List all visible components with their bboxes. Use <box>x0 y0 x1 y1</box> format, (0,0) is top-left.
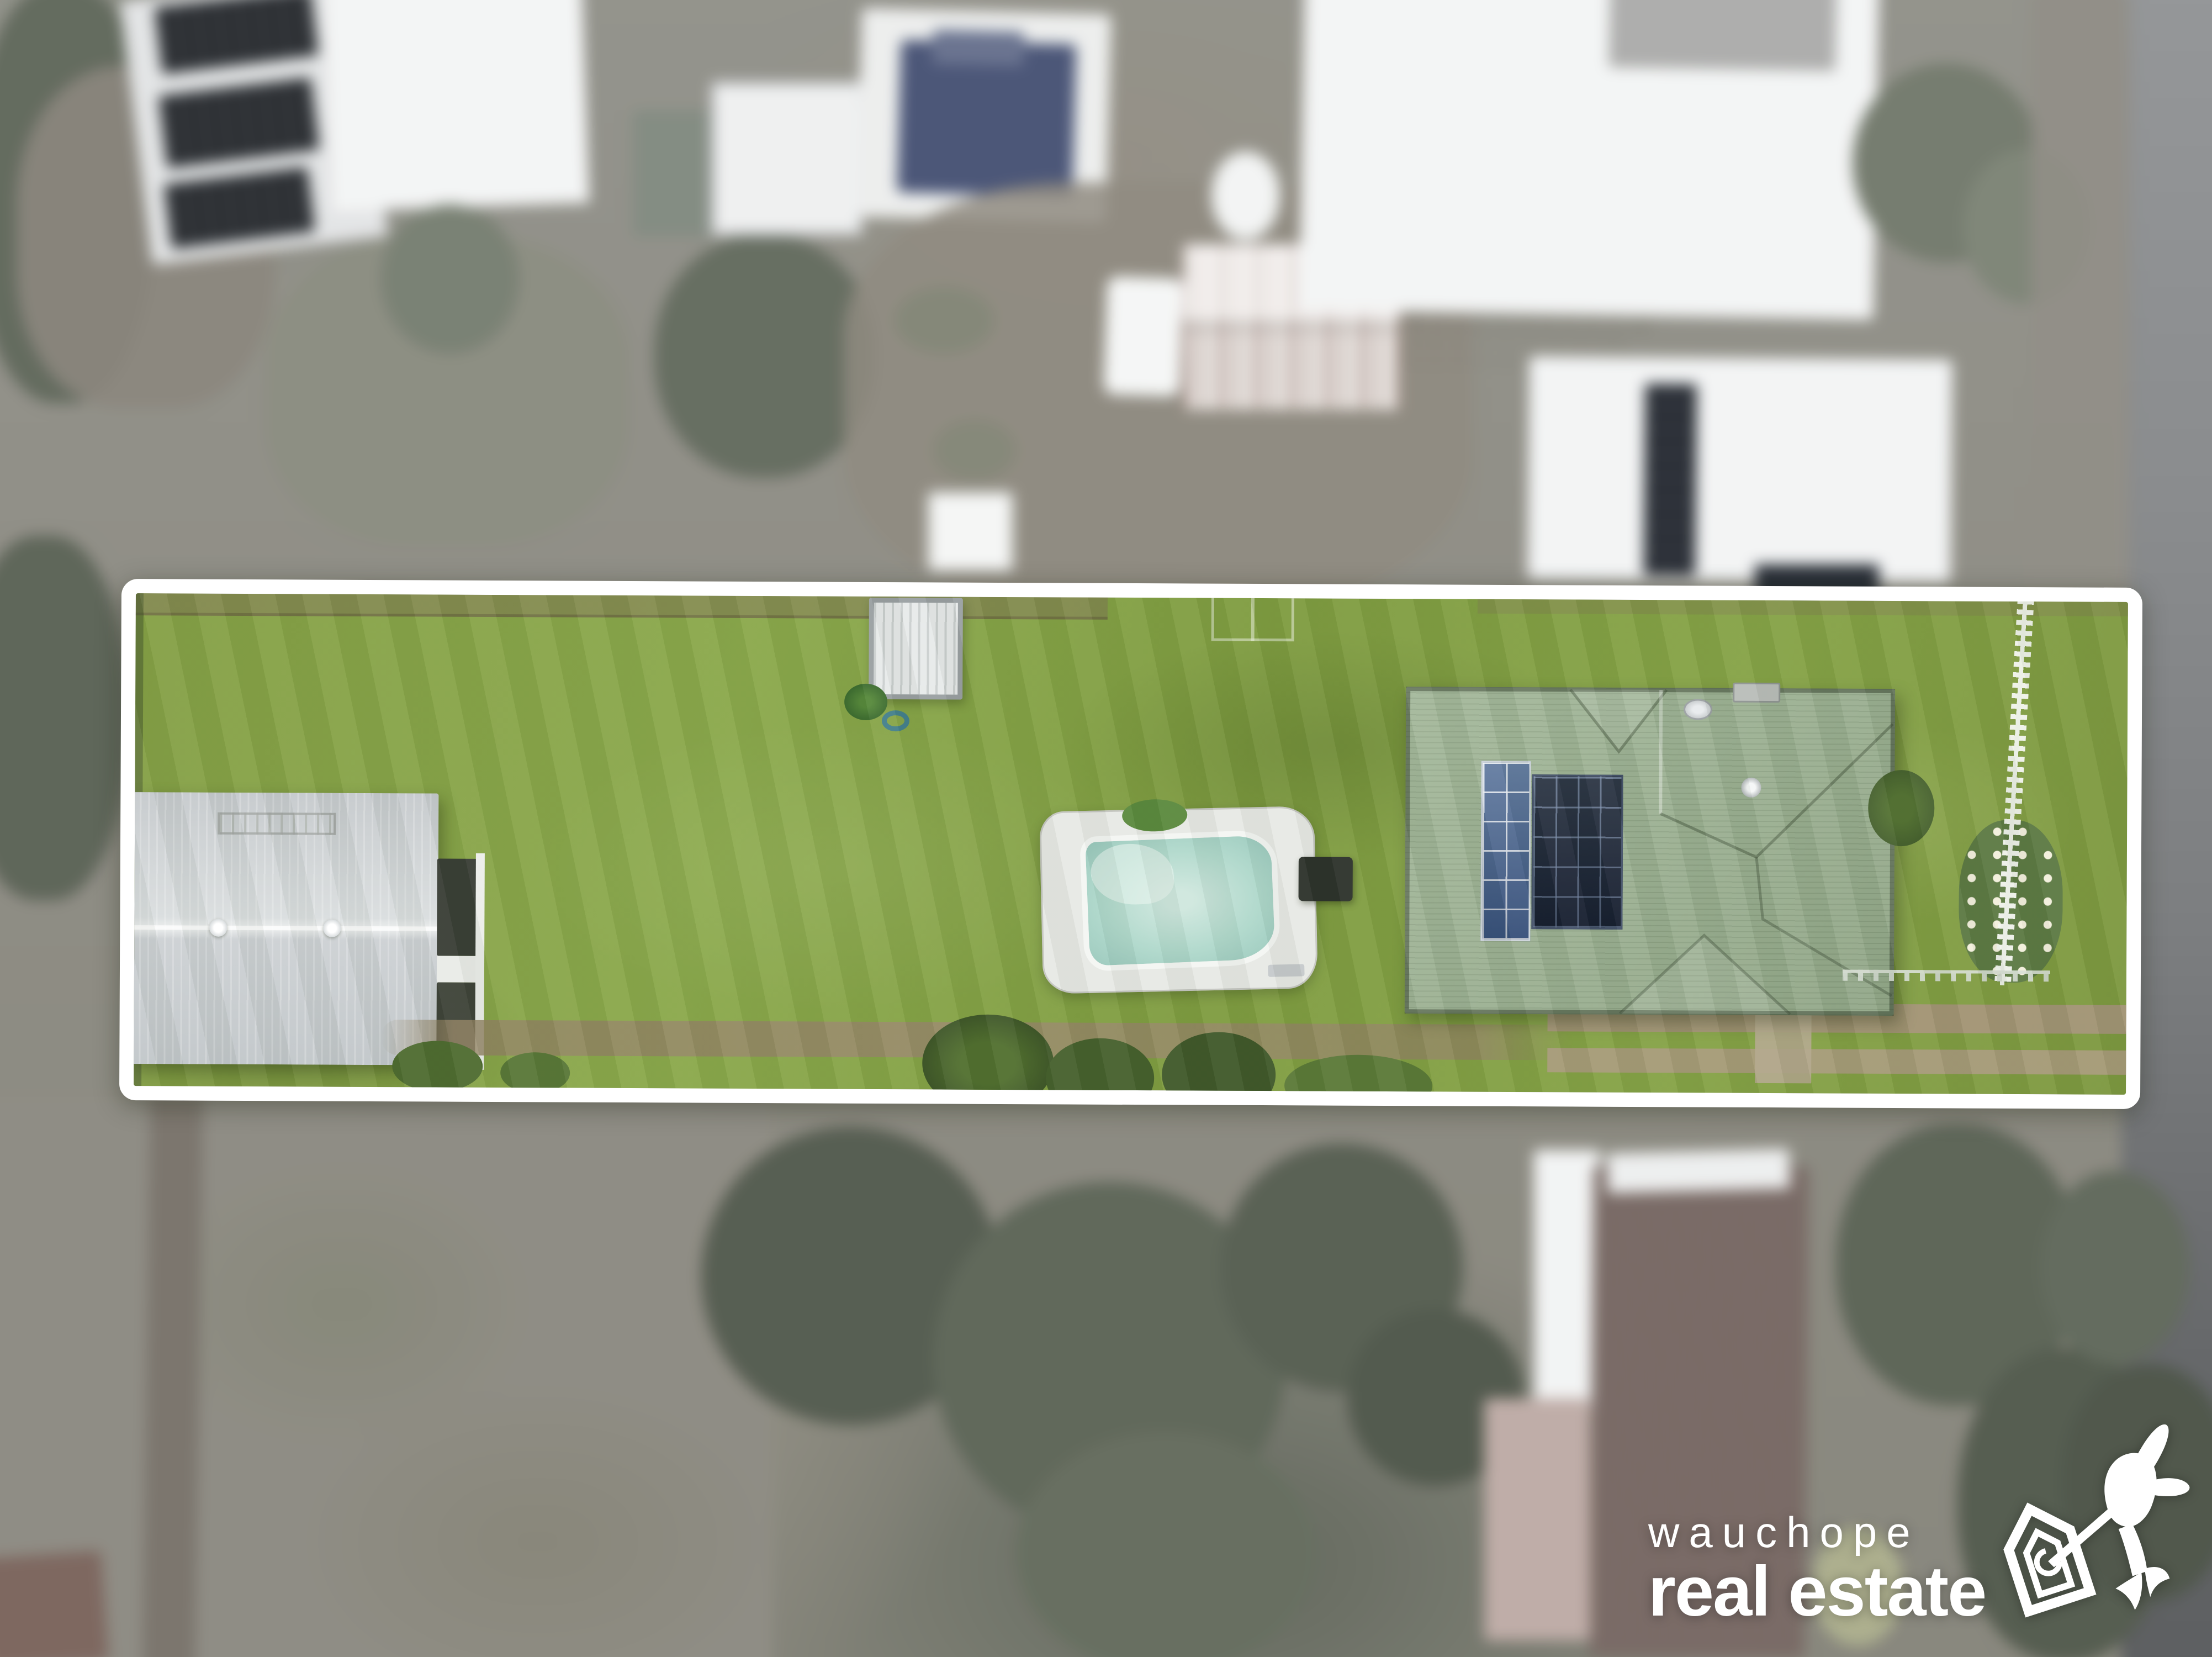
weed-patch <box>933 420 1016 481</box>
house-bird-logo-icon <box>1980 1412 2206 1633</box>
road-shoulder <box>2031 0 2130 608</box>
tree <box>381 204 519 353</box>
property-boundary <box>119 579 2142 1109</box>
roof-ridge-cap <box>1607 1149 1790 1194</box>
dirt-track <box>142 1096 203 1657</box>
gazebo <box>928 492 1013 572</box>
tree <box>0 536 127 900</box>
solar-array <box>154 0 319 75</box>
neighbour-white-building <box>325 0 589 212</box>
pool-step <box>932 30 1024 66</box>
solar-array <box>1643 383 1697 576</box>
trailer <box>1103 276 1183 397</box>
weed-patch <box>895 287 994 353</box>
salmon-deck <box>1484 1399 1590 1640</box>
tree <box>654 235 875 478</box>
mow-stripes-overlay <box>134 593 2128 1095</box>
east-house-with-solar <box>1527 356 1952 583</box>
white-shed <box>710 81 864 236</box>
solar-array <box>163 167 315 249</box>
red-shed <box>0 1551 109 1657</box>
solar-array <box>158 77 320 168</box>
dark-gable-roof <box>1609 0 1837 71</box>
white-side-building <box>1534 1150 1600 1412</box>
water-tank-dome <box>1210 150 1281 241</box>
tree <box>2040 1171 2189 1364</box>
field <box>0 1096 773 1657</box>
aerial-photo: wauchope real estate <box>0 0 2212 1657</box>
neighbour-blue-pool <box>897 40 1076 197</box>
watermark: wauchope real estate <box>1648 1511 2211 1632</box>
